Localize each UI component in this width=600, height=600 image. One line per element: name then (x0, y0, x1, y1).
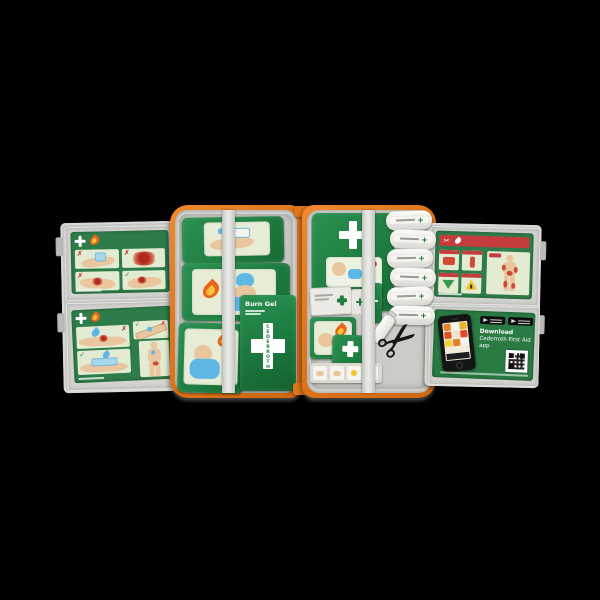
bandage-roll (390, 267, 437, 288)
body-diagram-cell (486, 251, 530, 295)
instruction-cell: ✗ (75, 271, 119, 291)
phone-speaker (450, 318, 458, 320)
instruction-cell: ✗ (122, 248, 165, 268)
person-body-illustration (189, 358, 220, 379)
burn-instruction-card-2: ✗ ✓ ✓ ✗ (71, 306, 174, 384)
white-cross-icon (342, 341, 359, 358)
white-cross-icon (75, 236, 86, 247)
instruction-cell: ✗ (75, 249, 119, 269)
wound-illustration (130, 251, 158, 266)
fine-print (315, 294, 333, 296)
flame-icon (88, 234, 101, 247)
scissors-icon: ✂ (443, 236, 449, 244)
bandage-roll (386, 210, 433, 231)
card-pocket: Download Cederroth First Aid app (428, 305, 540, 387)
phone-dock (446, 352, 469, 360)
funnel-illustration (442, 280, 454, 289)
check-mark-icon: ✓ (79, 352, 85, 359)
white-cross-icon (75, 313, 87, 325)
google-play-badge (480, 316, 505, 325)
cross-mark-icon: ✗ (77, 273, 83, 280)
cross-mark-icon: ✗ (77, 251, 83, 258)
finger-illustration (470, 257, 475, 268)
check-mark-icon: ✓ (135, 322, 140, 328)
first-aid-kit-product-photo: ✗ ✗ ✗ ✓ (0, 0, 600, 600)
instruction-cell (461, 273, 482, 294)
cross-mark-icon: ✗ (121, 326, 127, 333)
card-pocket: ✗ ✓ ✓ ✗ (66, 301, 180, 391)
hinge-tab (56, 237, 63, 256)
right-flap-panel: ✂ (424, 223, 541, 388)
human-figure (144, 341, 166, 377)
left-flap-panel: ✗ ✗ ✗ ✓ (60, 221, 182, 393)
instruction-cell: ✗ (76, 325, 130, 349)
mini-illustration (316, 371, 324, 376)
burn-gel-label: Burn Gel (245, 300, 277, 308)
fine-print (315, 298, 329, 300)
phone-screen (442, 321, 471, 361)
mini-illustration (333, 371, 341, 376)
human-figure (499, 254, 520, 293)
flame-icon (89, 311, 102, 324)
blue-glove-illustration (348, 269, 362, 279)
warning-mark (470, 285, 472, 289)
body-diagram-cell (139, 340, 171, 377)
brand-vertical-text: CEDERROTH (266, 325, 271, 367)
mini-illustration (351, 370, 357, 376)
instruction-cell: ✓ ✗ (133, 320, 169, 340)
instruction-cell (438, 273, 459, 294)
bandage-roll (387, 249, 433, 269)
cross-mark-icon: ✗ (161, 321, 166, 327)
burn-gel-pack: Burn Gel CEDERROTH (240, 295, 296, 391)
case-right-half: ✂ (302, 205, 436, 398)
dressing-pack-white (309, 286, 352, 316)
smartphone-illustration (437, 313, 475, 372)
card-pocket: ✗ ✗ ✗ ✓ (64, 225, 178, 301)
ice-pack-illustration (95, 252, 106, 261)
app-download-card: Download Cederroth First Aid app (432, 309, 536, 381)
burn-instruction-card-1: ✗ ✗ ✗ ✓ (70, 230, 169, 294)
wound-illustration (443, 257, 455, 265)
hinge-tab (57, 313, 64, 332)
green-cross-icon (337, 295, 348, 306)
qr-code (505, 350, 528, 373)
elastic-strap (362, 210, 375, 393)
instruction-cell (462, 250, 483, 271)
case-left-half: Burn Gel CEDERROTH (170, 205, 302, 398)
fine-print (78, 377, 104, 380)
flame-icon (200, 279, 223, 302)
bandage-roll (390, 229, 437, 250)
fine-print (76, 289, 102, 292)
phone-home-button (455, 361, 463, 369)
fine-print (245, 310, 265, 312)
app-card-title-line1: Download (480, 328, 514, 336)
cross-mark-icon: ✗ (124, 250, 130, 257)
instruction-cell (439, 250, 460, 271)
fine-print (245, 313, 261, 315)
card-red-header: ✂ (439, 235, 529, 249)
instruction-cell: ✓ (122, 270, 165, 290)
card-pocket: ✂ (429, 226, 541, 306)
app-card-title-line2: Cederroth First Aid app (479, 336, 533, 351)
check-mark-icon: ✓ (124, 272, 130, 279)
app-store-badge (508, 317, 533, 326)
elastic-strap (222, 210, 235, 393)
bandage-roll (387, 286, 434, 307)
person-face-illustration (332, 262, 346, 276)
instruction-cell: ✓ (77, 349, 131, 375)
wound-instruction-card: ✂ (434, 231, 534, 300)
fine-print (438, 293, 462, 296)
blood-drop-icon (454, 237, 463, 245)
